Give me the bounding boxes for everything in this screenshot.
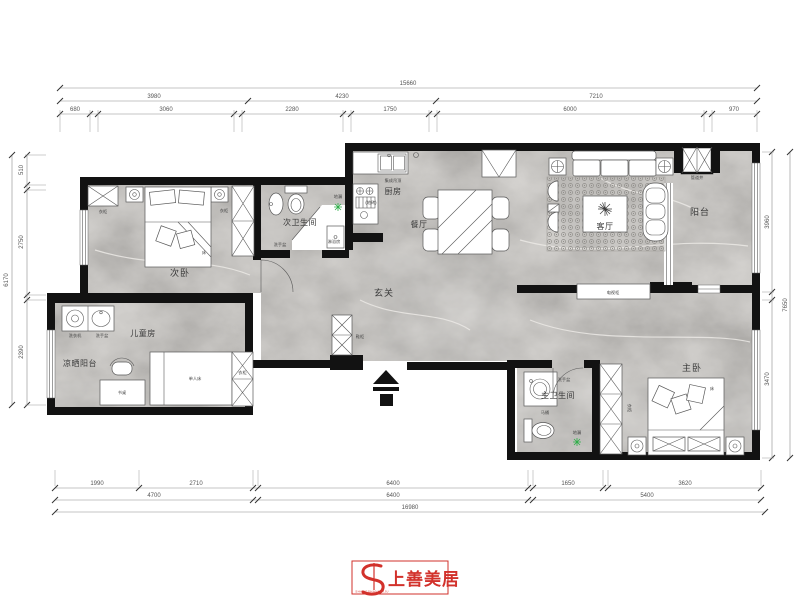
wardrobe-icon (88, 186, 118, 206)
dimensions-right: 3960 3470 7650 (762, 149, 793, 461)
double-bed-icon (145, 187, 211, 267)
floor-drain-icon (573, 438, 581, 446)
room-label-living: 客厅 (597, 221, 614, 231)
dim-label: 2710 (189, 481, 203, 487)
dim-label: 510 (19, 164, 25, 175)
dim-label: 16980 (402, 505, 419, 511)
armchair-icon (643, 183, 668, 241)
nightstand-icon (628, 437, 646, 455)
room-label-kitchen: 厨房 (385, 186, 402, 196)
wash-basin-label: 洗手盆 (96, 332, 109, 339)
shoe-cabinet-icon (332, 315, 352, 355)
dim-label: 6170 (4, 273, 10, 287)
window-drying-balcony (47, 330, 55, 398)
vanity-icon (524, 372, 557, 406)
dim-label: 3620 (678, 481, 692, 487)
floor-plan-canvas: 衣柜 床 衣柜 次卧 (0, 0, 800, 600)
dim-label: 4230 (335, 94, 349, 100)
floor-drain-label: 地漏 (334, 193, 342, 200)
dim-label: 970 (729, 107, 740, 113)
dim-label: 3980 (147, 94, 161, 100)
room-label-drying-balcony: 凉晒阳台 (63, 358, 97, 368)
shower-tray-icon (327, 226, 344, 248)
wardrobe-icon (232, 352, 253, 406)
dim-label: 4700 (147, 493, 161, 499)
floor-tile-note-label: (地砖) (365, 199, 377, 206)
room-label-secondary-bathroom: 次卫生间 (283, 217, 317, 227)
room-label-foyer: 玄关 (374, 287, 394, 298)
window-master-bedroom (752, 330, 760, 430)
dim-label: 6400 (386, 493, 400, 499)
room-label-master-bedroom: 主卧 (682, 362, 702, 373)
window-secondary-bedroom (80, 210, 88, 265)
room-label-master-bathroom: 主卫生间 (541, 390, 575, 400)
wardrobe-icon (232, 186, 254, 256)
dim-label: 2280 (285, 107, 299, 113)
single-bed-label: 单人床 (189, 375, 202, 382)
dim-label: 1750 (383, 107, 397, 113)
dim-label: 2390 (19, 345, 25, 359)
wardrobe-icon (600, 364, 622, 454)
nightstand-icon (211, 187, 228, 202)
wardrobe-label: 衣柜 (626, 404, 633, 412)
floor-drain-icon (334, 203, 342, 211)
dimensions-top: 15660 3980 4230 7210 680 3060 2280 1750 … (57, 81, 760, 132)
desk-label: 书桌 (118, 389, 127, 396)
dim-label: 2750 (19, 235, 25, 249)
sofa-icon (572, 151, 656, 176)
room-label-balcony: 阳台 (690, 206, 710, 217)
dim-label: 6400 (386, 481, 400, 487)
dim-label: 3960 (765, 215, 771, 229)
entry-arrow-icon (373, 370, 399, 406)
dim-label: 15660 (400, 81, 417, 87)
dining-chair-icon (423, 197, 440, 219)
dim-label: 1990 (90, 481, 104, 487)
wardrobe-label: 衣柜 (238, 369, 246, 376)
dim-label: 7650 (783, 298, 789, 312)
nightstand-icon (126, 187, 143, 202)
floor-plan-drawing: 衣柜 床 衣柜 次卧 (0, 0, 800, 600)
toilet-label: 马桶 (541, 409, 549, 416)
wash-basin-label: 洗手盆 (274, 241, 287, 248)
side-table-icon (656, 158, 673, 175)
side-table-icon (549, 158, 566, 175)
dimensions-left: 510 2750 2390 6170 (4, 152, 46, 408)
balcony-door (698, 285, 720, 293)
dimensions-bottom: 1990 2710 6400 1650 3620 4700 6400 5400 … (52, 470, 768, 515)
fridge-icon (482, 150, 516, 177)
basin-icon (269, 193, 283, 215)
window-balcony-east (752, 163, 760, 273)
company-logo: SHANGSHANMEIJU 上善美居 (352, 561, 460, 594)
dining-chair-icon (492, 229, 509, 251)
plant-icon (598, 202, 612, 216)
room-label-kids-room: 儿童房 (130, 328, 156, 338)
dim-label: 5400 (640, 493, 654, 499)
dining-chair-icon (492, 197, 509, 219)
room-label-dining: 餐厅 (411, 220, 428, 229)
wardrobe-label: 衣柜 (99, 208, 107, 215)
tv-cabinet-label: 电视柜 (607, 289, 620, 296)
dim-label: 680 (70, 107, 81, 113)
dining-chair-icon (423, 229, 440, 251)
dim-label: 1650 (561, 481, 575, 487)
dining-table-icon (438, 190, 492, 254)
room-label-secondary-bedroom: 次卧 (170, 267, 190, 278)
dim-label: 6000 (563, 107, 577, 113)
floor-drain-label: 地漏 (573, 429, 581, 436)
logo-name: 上善美居 (388, 569, 460, 589)
shower-room-label: 淋浴房 (328, 238, 341, 245)
wardrobe-label: 衣柜 (220, 207, 228, 214)
tray-icon (548, 204, 559, 212)
washing-machine-label: 洗衣机 (69, 332, 82, 339)
sink-counter-icon (353, 152, 408, 174)
dim-label: 3470 (765, 372, 771, 386)
shoe-cabinet-label: 鞋柜 (356, 333, 364, 340)
ceiling-note-label: 集成吊顶 (385, 177, 403, 184)
logo-subtext: SHANGSHANMEIJU (355, 590, 389, 594)
laundry-unit-icon (62, 306, 114, 331)
dim-label: 3060 (159, 107, 173, 113)
duct-shaft-icon (682, 147, 712, 173)
dim-label: 7210 (589, 94, 603, 100)
nightstand-icon (726, 437, 744, 455)
duct-shaft-label: 管道井 (691, 174, 704, 181)
